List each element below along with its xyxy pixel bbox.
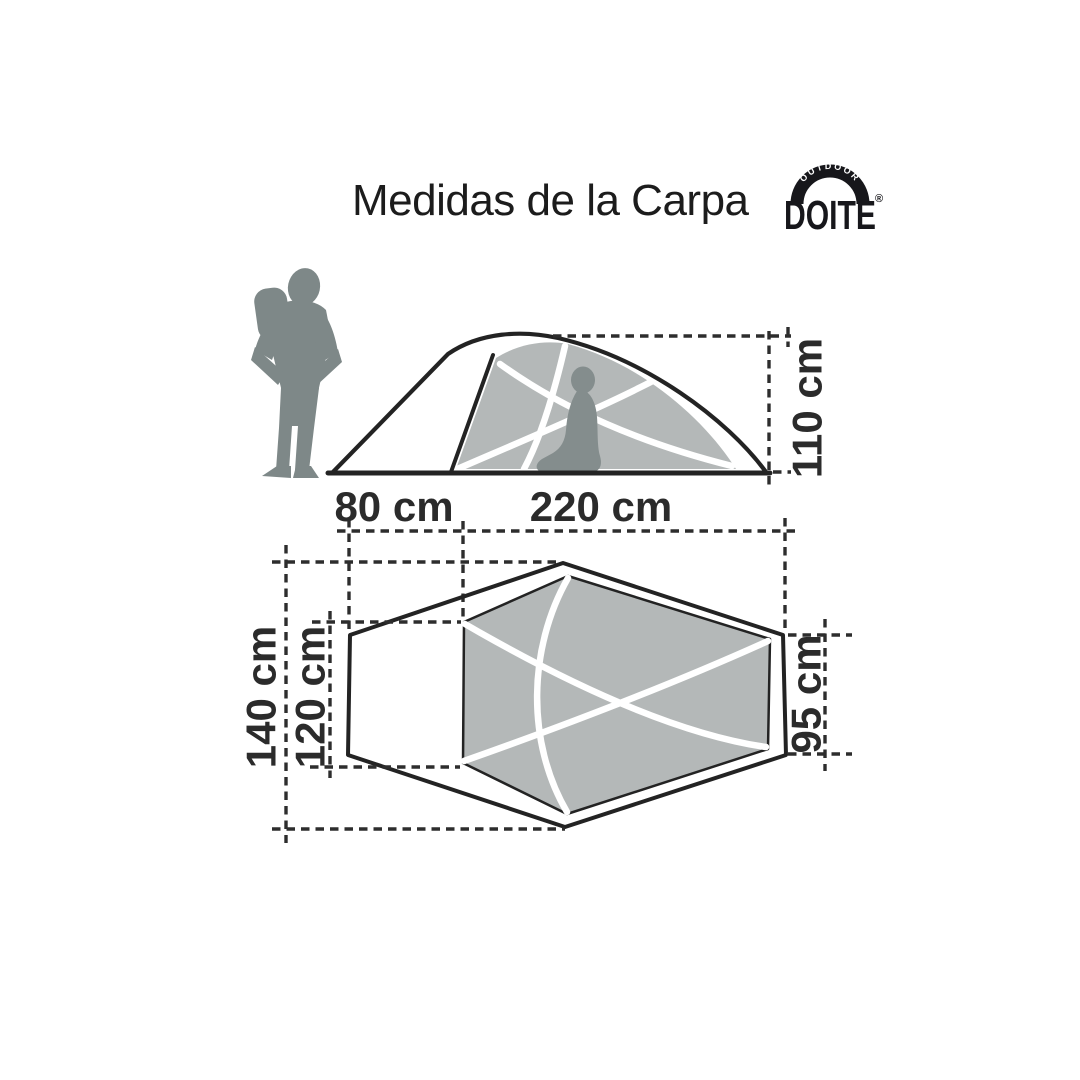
dim-label-vestibule: 80 cm bbox=[334, 483, 453, 530]
head-width-dimension: 95 cm bbox=[783, 619, 853, 771]
logo-brand-text: DOITE bbox=[784, 192, 876, 238]
doite-logo: OUTDOOR DOITE ® bbox=[784, 161, 883, 238]
inner-body-plan bbox=[463, 576, 770, 814]
tent-measurements-infographic: Medidas de la Carpa OUTDOOR DOITE ® bbox=[0, 0, 1080, 1080]
person-left-foot bbox=[262, 466, 291, 478]
scale-person-icon bbox=[251, 265, 342, 478]
person-legs bbox=[276, 388, 319, 470]
dim-label-floor-length: 220 cm bbox=[530, 483, 672, 530]
occupant-head bbox=[571, 367, 595, 394]
top-view: 140 cm 120 cm 95 cm bbox=[238, 545, 853, 843]
logo-registered-icon: ® bbox=[875, 193, 883, 205]
inner-width-dimension: 120 cm bbox=[287, 611, 462, 778]
diagram-canvas: OUTDOOR DOITE ® bbox=[0, 0, 1080, 1080]
side-view: 110 cm bbox=[251, 265, 831, 489]
dim-label-outer-width: 140 cm bbox=[238, 626, 285, 768]
person-right-foot bbox=[293, 466, 319, 478]
dim-label-height: 110 cm bbox=[784, 338, 831, 478]
dim-label-inner-width: 120 cm bbox=[287, 626, 334, 768]
dim-label-head-width: 95 cm bbox=[783, 634, 830, 753]
